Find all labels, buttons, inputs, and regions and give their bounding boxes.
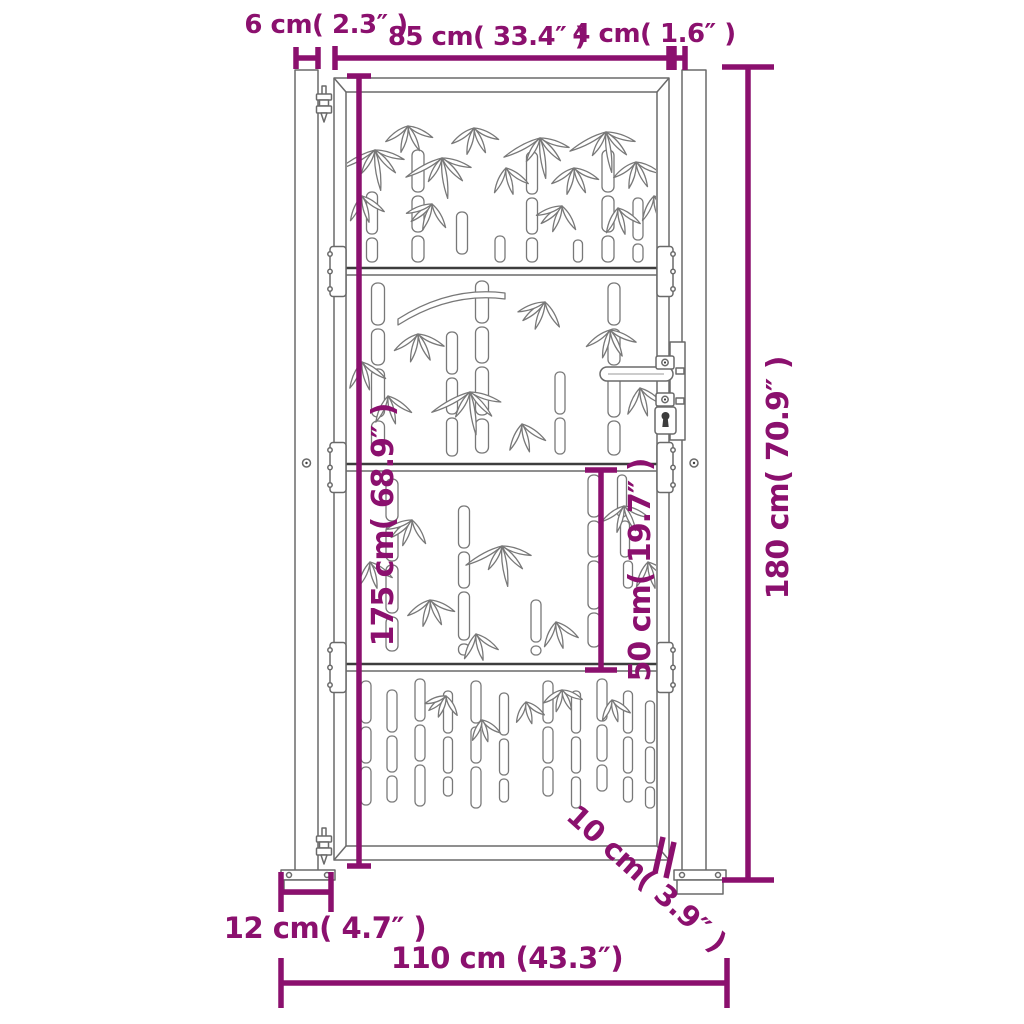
gate-height-label: 175 cm( 68.9″ ) <box>366 404 401 647</box>
hinge-gap-label: 4 cm( 1.6″ ) <box>572 19 735 49</box>
dimension-diagram: 6 cm( 2.3″ ) 85 cm( 33.4″ ) 4 cm( 1.6″ )… <box>0 0 1024 1024</box>
dim-post-height: 180 cm( 70.9″ ) <box>722 67 796 880</box>
gate-diagram-svg: 6 cm( 2.3″ ) 85 cm( 33.4″ ) 4 cm( 1.6″ )… <box>0 0 1024 1024</box>
gate-width-label: 85 cm( 33.4″ ) <box>388 22 586 52</box>
left-post <box>281 70 335 894</box>
total-width-label: 110 cm (43.3″) <box>391 941 623 975</box>
post-width-label: 6 cm( 2.3″ ) <box>244 10 407 40</box>
post-height-label: 180 cm( 70.9″ ) <box>761 357 796 600</box>
panel-height-label: 50 cm( 19.7″ ) <box>623 459 658 682</box>
foot-width-label: 12 cm( 4.7″ ) <box>224 911 426 945</box>
dim-hinge-gap: 4 cm( 1.6″ ) <box>572 19 735 70</box>
right-post <box>674 70 726 894</box>
dim-total-width: 110 cm (43.3″) <box>281 941 727 1008</box>
